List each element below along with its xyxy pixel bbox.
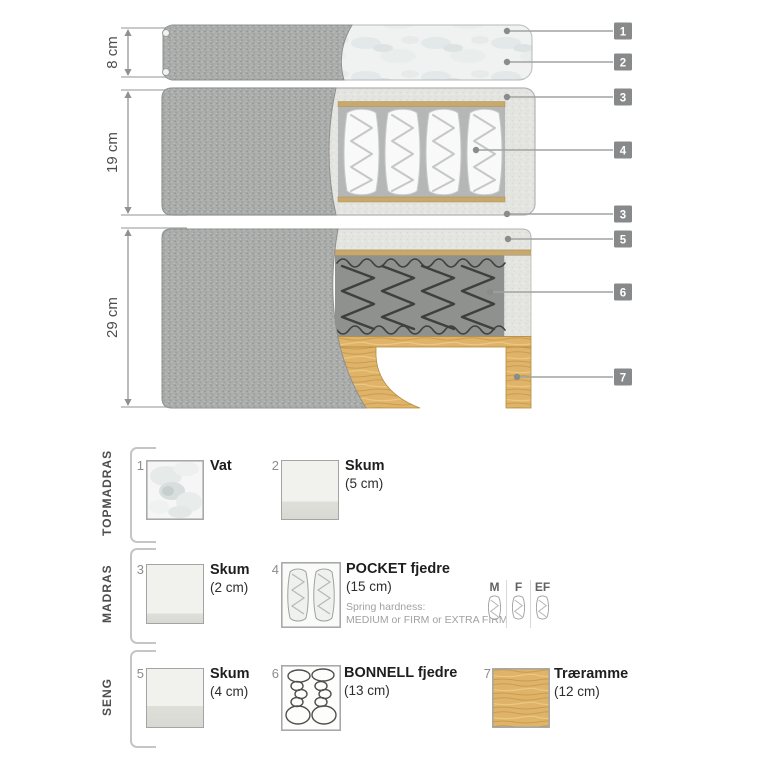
legend-item-text: POCKET fjedre (15 cm) xyxy=(346,561,450,595)
bed-foam-side xyxy=(504,256,531,337)
legend-item-text: Skum (4 cm) xyxy=(210,666,250,700)
callout-badge-3b: 3 xyxy=(620,209,626,221)
callout-7: 7 xyxy=(514,369,632,386)
pocket-spring-icon xyxy=(511,594,526,621)
foam-swatch xyxy=(146,564,204,624)
wood-swatch xyxy=(492,668,550,733)
cross-section-diagram: 8 cm 19 cm 29 cm xyxy=(0,0,770,440)
dimension-19cm-label: 19 cm xyxy=(104,132,121,173)
legend-item-title: Træramme xyxy=(554,666,628,683)
legend-item-title: Skum xyxy=(210,666,250,683)
legend-item-text: Skum (5 cm) xyxy=(345,458,385,492)
wood-frame xyxy=(335,337,531,409)
callout-badge-3: 3 xyxy=(620,92,626,104)
hardness-option-extra-firm: EF xyxy=(530,580,554,628)
pocket-spring-icon xyxy=(535,594,550,621)
group-label-topmadras: TOPMADRAS xyxy=(96,447,118,539)
legend-item-number: 1 xyxy=(132,459,144,473)
legend-item-size: (5 cm) xyxy=(345,475,385,492)
legend-item-number: 7 xyxy=(479,667,491,681)
legend-item-number: 3 xyxy=(132,563,144,577)
callout-badge-4: 4 xyxy=(620,145,627,157)
legend-item-title: Skum xyxy=(210,562,250,579)
legend-item-title: Skum xyxy=(345,458,385,475)
tan-layer-bottom xyxy=(338,197,505,202)
legend-item-number: 5 xyxy=(132,667,144,681)
legend-item-text: BONNELL fjedre (13 cm) xyxy=(344,665,457,699)
dimension-8cm-label: 8 cm xyxy=(104,36,121,69)
legend-item-size: (4 cm) xyxy=(210,683,250,700)
callout-badge-7: 7 xyxy=(620,372,626,384)
bonnell-springs-icon xyxy=(281,665,341,736)
group-label-seng: SENG xyxy=(96,650,118,744)
foam-swatch xyxy=(281,460,339,520)
legend-item-title: BONNELL fjedre xyxy=(344,665,457,682)
legend-item-size: (12 cm) xyxy=(554,683,628,700)
topmattress-section xyxy=(163,25,533,80)
hardness-option-firm: F xyxy=(506,580,530,628)
mattress-fabric xyxy=(162,88,336,215)
legend-item-size: (2 cm) xyxy=(210,579,250,596)
dimension-29cm-label: 29 cm xyxy=(104,297,121,338)
legend-item-size: (15 cm) xyxy=(346,578,450,595)
callout-badge-6: 6 xyxy=(620,287,626,299)
wood-rail xyxy=(335,337,531,348)
callout-badge-5: 5 xyxy=(620,234,627,246)
mattress-button xyxy=(163,30,170,37)
mattress-button xyxy=(163,69,170,76)
mattress-section xyxy=(162,88,535,215)
legend-item-text: Skum (2 cm) xyxy=(210,562,250,596)
legend-item-title: POCKET fjedre xyxy=(346,561,450,578)
callout-badge-2: 2 xyxy=(620,57,626,69)
pocket-spring-icon xyxy=(487,594,502,621)
mattress-construction-infographic: 8 cm 19 cm 29 cm xyxy=(0,0,770,770)
legend-item-number: 4 xyxy=(267,563,279,577)
legend-item-number: 2 xyxy=(267,459,279,473)
legend-item-title: Vat xyxy=(210,458,232,475)
callout-badge-1: 1 xyxy=(620,26,627,38)
legend-item-number: 6 xyxy=(267,667,279,681)
vat-swatch xyxy=(146,460,204,525)
group-label-madras: MADRAS xyxy=(96,548,118,640)
tan-layer xyxy=(335,250,531,256)
legend-item-text: Vat xyxy=(210,458,232,475)
bed-base-section xyxy=(162,229,531,408)
foam-swatch xyxy=(146,668,204,728)
pocket-springs-icon xyxy=(281,562,341,633)
hardness-option-medium: M xyxy=(483,580,506,628)
topmattress-fabric xyxy=(163,25,352,80)
legend-item-size: (13 cm) xyxy=(344,682,457,699)
spring-hardness-options: M F EF xyxy=(483,580,554,628)
legend-item-text: Træramme (12 cm) xyxy=(554,666,628,700)
tan-layer-top xyxy=(338,102,505,107)
